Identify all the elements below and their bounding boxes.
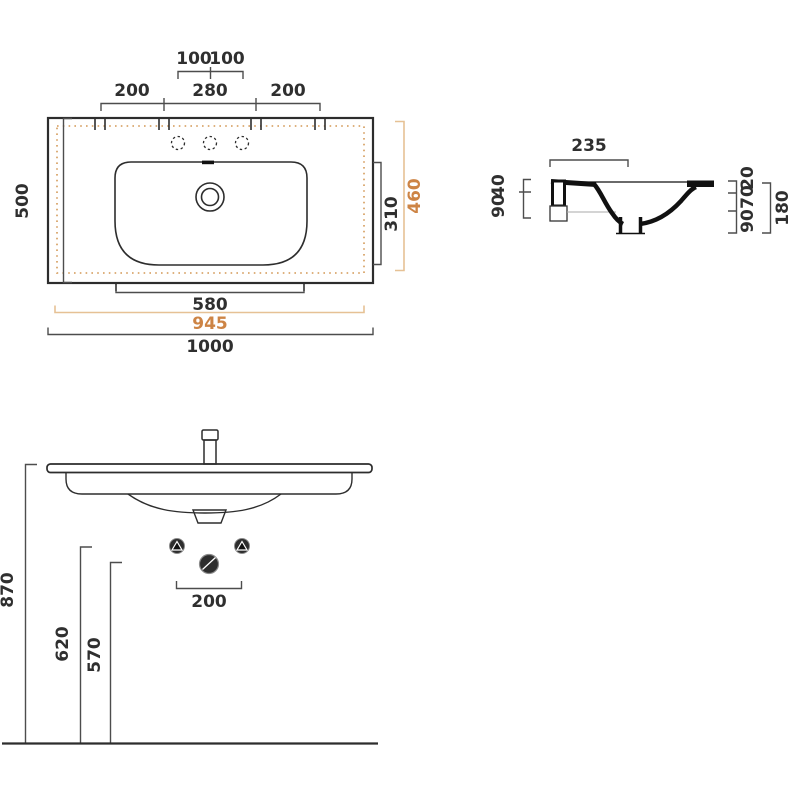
faucet-hole-right (236, 137, 249, 150)
plan-inner-dashed-outline (57, 126, 364, 273)
section-dim-20-70-90-bracket (728, 181, 737, 233)
plan-dim-1000-label: 1000 (186, 337, 233, 357)
section-bowl-right-wall (640, 187, 696, 224)
plan-dim-460-bracket (395, 122, 404, 271)
plan-drain-outer-circle (196, 183, 224, 211)
plan-dim-310-bracket (373, 163, 381, 265)
plan-view: 100 100 200 280 200 500 310 460 580 945 … (13, 49, 425, 357)
section-view: 235 40 90 20 70 90 180 (489, 136, 793, 234)
section-dim-70-label: 70 (738, 185, 758, 209)
faucet-hole-left (172, 137, 185, 150)
front-dim-570-label: 570 (85, 637, 105, 673)
front-dim-200-bracket (177, 581, 242, 589)
plan-outer-outline (48, 118, 373, 283)
technical-drawing-canvas: 100 100 200 280 200 500 310 460 580 945 … (0, 0, 800, 800)
section-right-rim (687, 181, 714, 188)
section-dim-180-bracket (762, 183, 771, 233)
section-dim-235-label: 235 (571, 136, 607, 156)
front-dim-620-label: 620 (53, 626, 73, 662)
front-dim-870-line (26, 465, 38, 744)
front-apron (66, 473, 352, 495)
plan-dim-200-right-label: 200 (270, 81, 306, 101)
section-dim-90-left-label: 90 (489, 194, 509, 218)
plan-overflow-mark (202, 161, 214, 165)
plan-bowl-outline (115, 162, 307, 265)
plan-faucet-holes (172, 137, 249, 150)
section-bowl-left-wall (594, 184, 623, 224)
washbasin-drawing-svg: 100 100 200 280 200 500 310 460 580 945 … (0, 0, 800, 800)
faucet-hole-center (204, 137, 217, 150)
plan-bottom-edge-ticks (116, 284, 304, 291)
plan-drain-inner-circle (202, 189, 219, 206)
front-tap-body (204, 440, 216, 464)
front-dim-200-label: 200 (191, 592, 227, 612)
front-view: 200 870 620 570 (0, 430, 378, 744)
front-fixing-points (170, 539, 250, 574)
plan-dim-100-right-label: 100 (209, 49, 245, 69)
section-dim-180-label: 180 (773, 190, 793, 226)
section-fixing-lug (550, 206, 567, 221)
section-left-wall (553, 181, 565, 206)
front-dim-570-line (111, 563, 123, 744)
plan-dim-500-label: 500 (13, 183, 33, 219)
plan-dim-100-left-label: 100 (176, 49, 212, 69)
front-dim-870-label: 870 (0, 572, 18, 608)
plan-dim-580-bracket (116, 285, 304, 293)
plan-dim-280-label: 280 (192, 81, 228, 101)
section-dim-235-bracket (550, 160, 628, 167)
plan-dim-460-label: 460 (405, 178, 425, 214)
section-dim-40-90-bracket (519, 180, 531, 219)
section-dim-90-right-label: 90 (738, 209, 758, 233)
plan-dim-945-label: 945 (192, 314, 228, 334)
front-tap-spout (202, 430, 218, 440)
plan-dim-200-left-label: 200 (114, 81, 150, 101)
plan-dim-310-label: 310 (382, 196, 402, 232)
plan-dim-500-bracket (64, 119, 73, 283)
front-slab (47, 464, 372, 473)
